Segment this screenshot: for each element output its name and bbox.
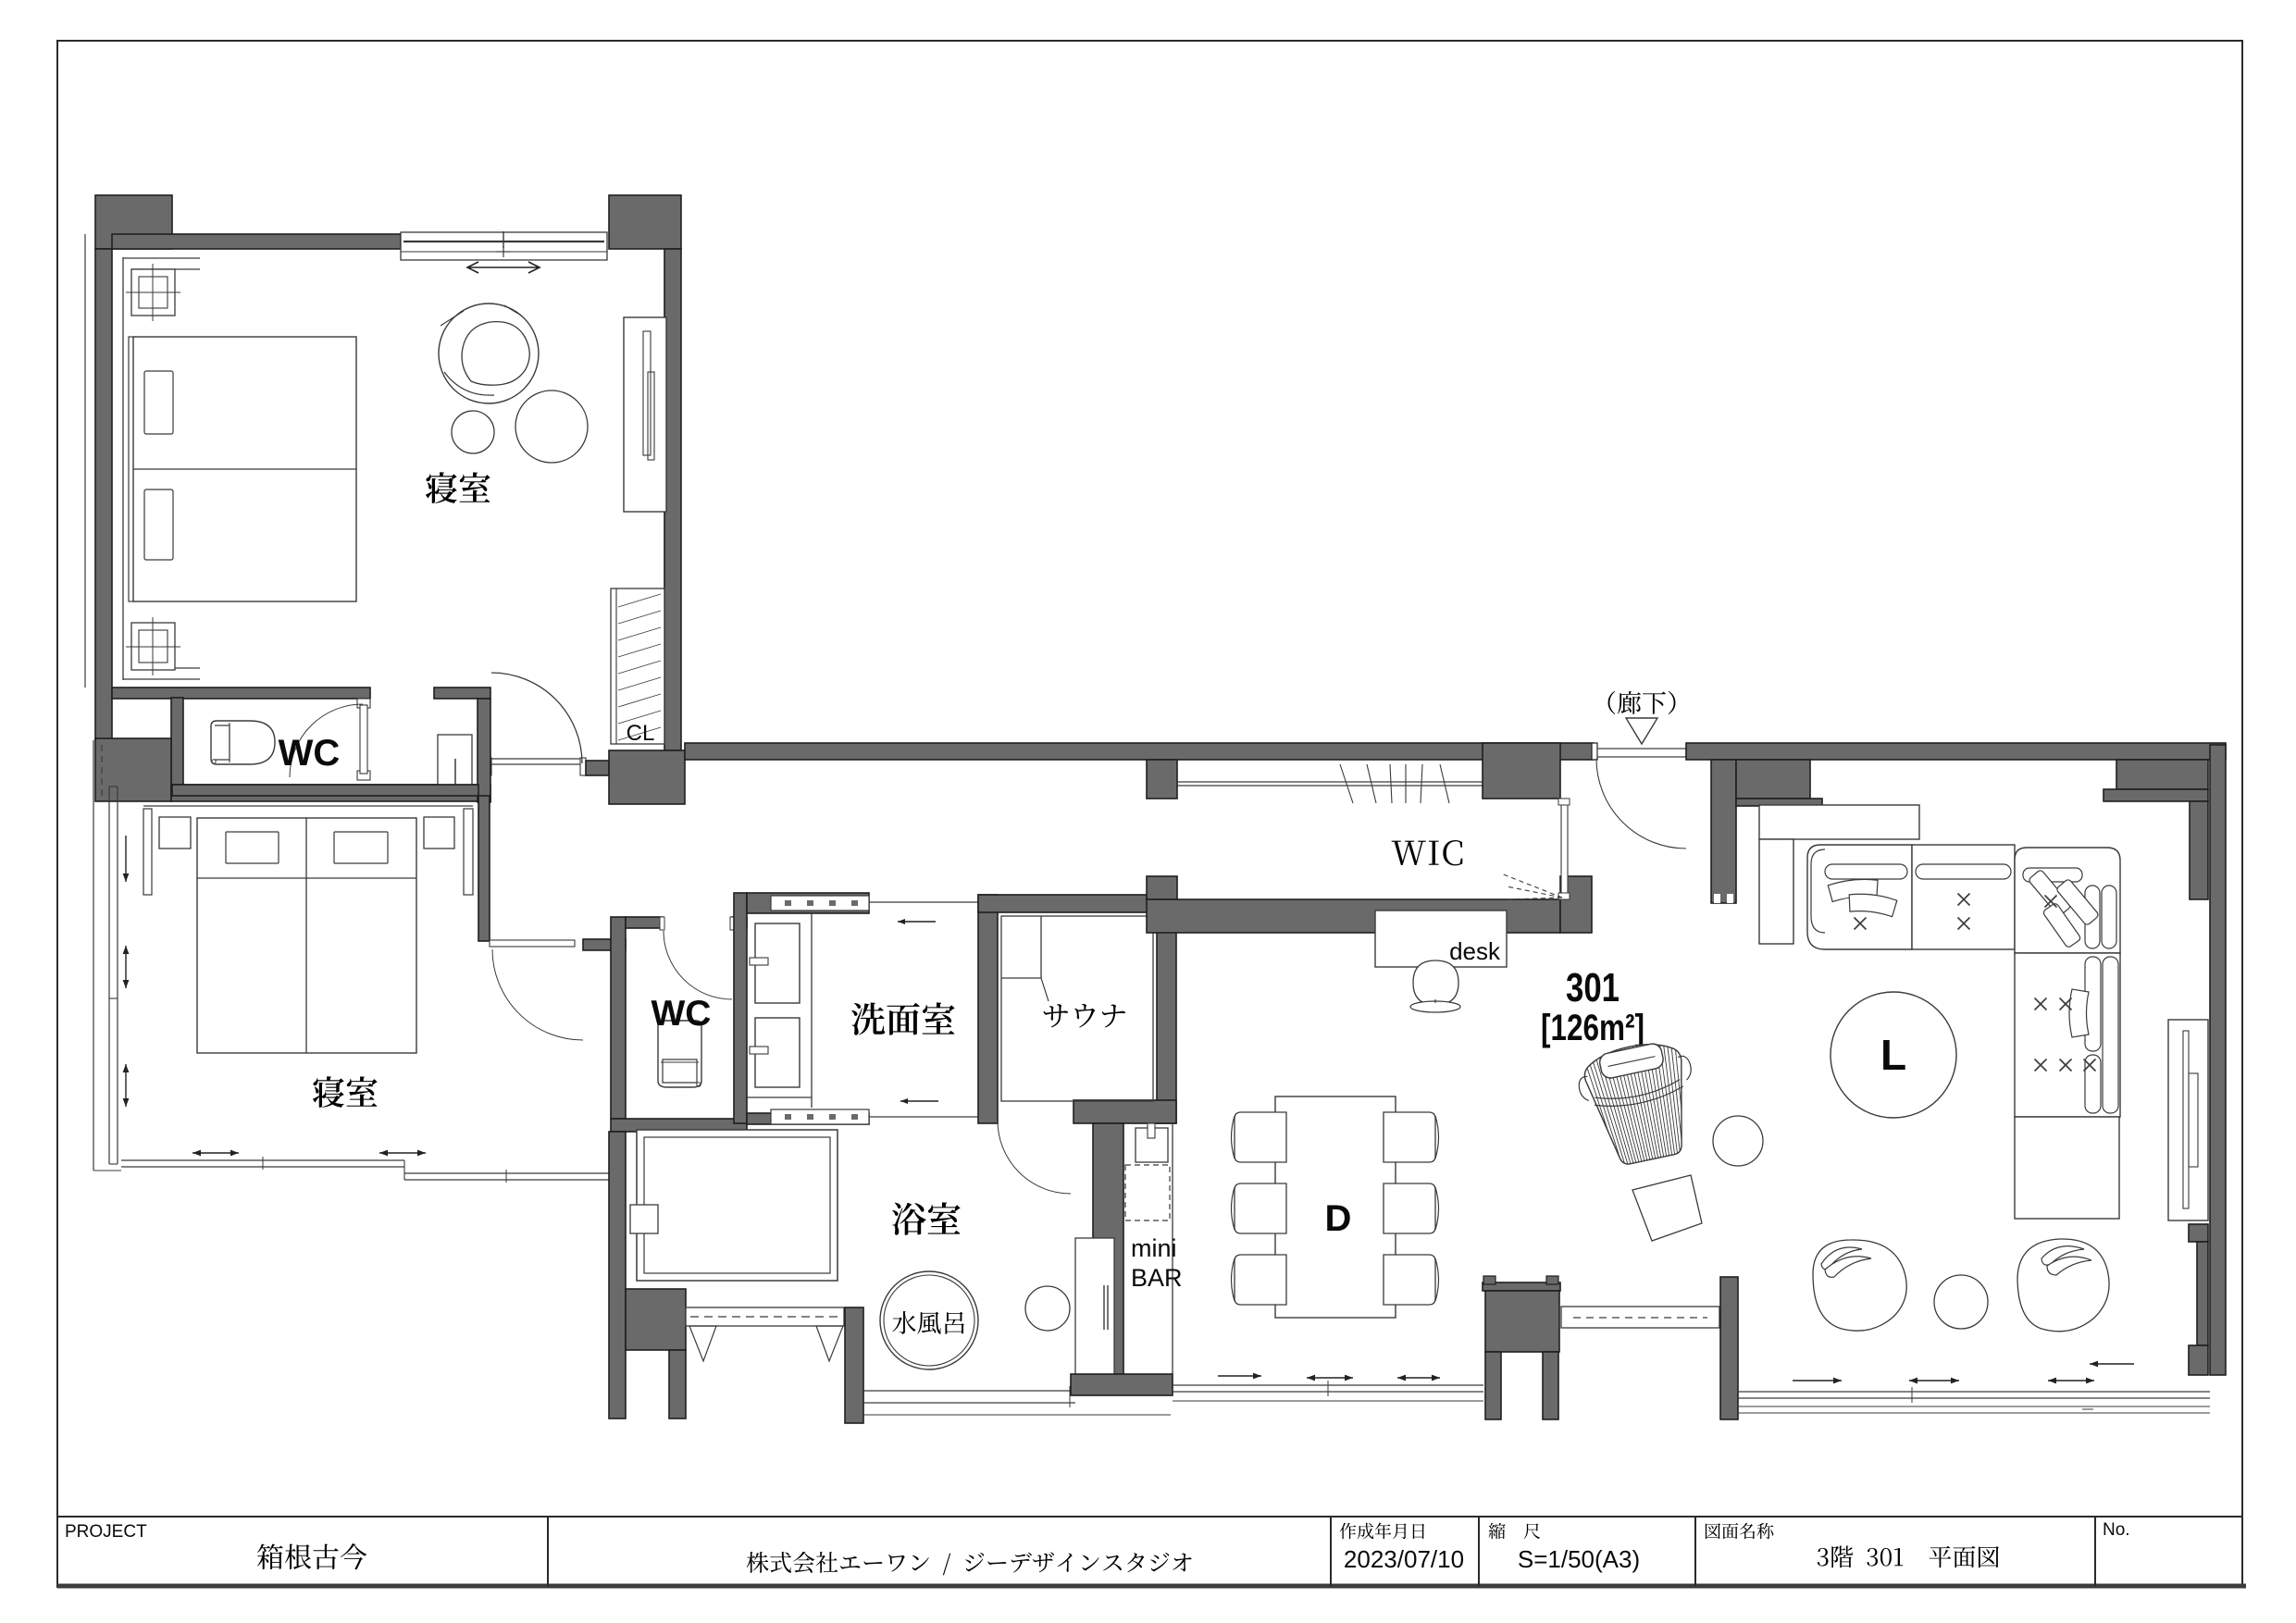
svg-text:WC: WC [652, 994, 712, 1034]
svg-text:desk: desk [1449, 937, 1501, 965]
svg-text:2023/07/10: 2023/07/10 [1344, 1545, 1464, 1573]
svg-text:No.: No. [2103, 1520, 2130, 1540]
svg-text:BAR: BAR [1131, 1264, 1183, 1292]
svg-text:WC: WC [279, 733, 341, 774]
svg-text:L: L [1880, 1031, 1906, 1079]
svg-text:301: 301 [1566, 965, 1620, 1010]
svg-text:PROJECT: PROJECT [65, 1522, 147, 1542]
svg-text:CL: CL [627, 721, 655, 746]
svg-text:[126m²]: [126m²] [1541, 1008, 1644, 1048]
svg-text:mini: mini [1131, 1234, 1177, 1262]
svg-text:S=1/50(A3): S=1/50(A3) [1518, 1545, 1640, 1573]
svg-text:D: D [1325, 1198, 1352, 1239]
